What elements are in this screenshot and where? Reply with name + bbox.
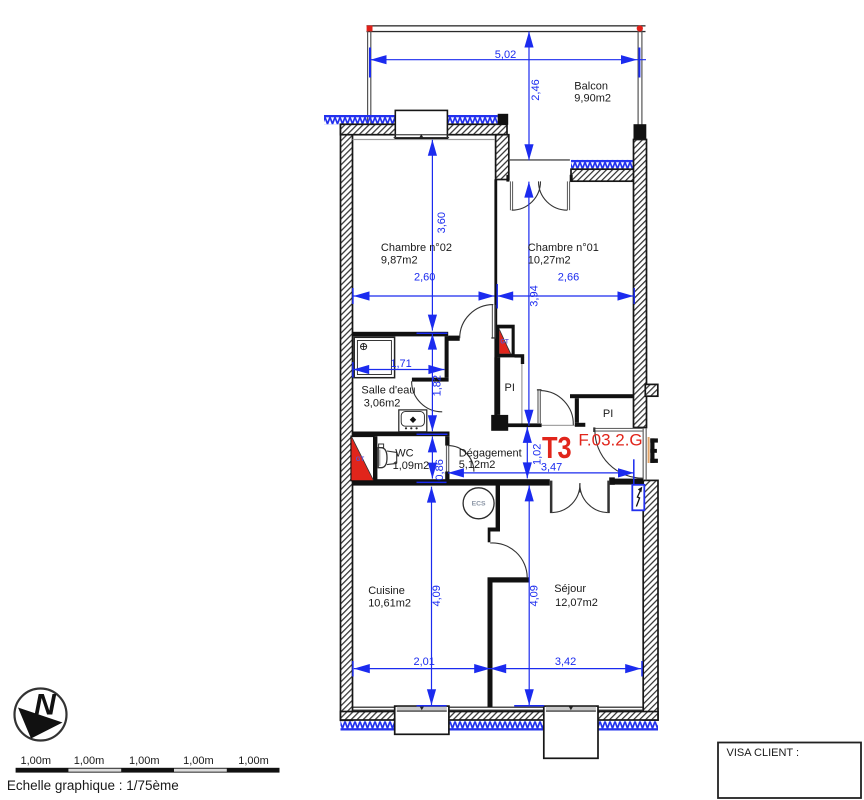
svg-text:1,09m2: 1,09m2 [393,460,430,472]
svg-text:GT: GT [500,340,509,346]
svg-text:3,60: 3,60 [436,212,448,233]
svg-text:3,42: 3,42 [555,656,576,668]
svg-text:Séjour: Séjour [554,583,586,595]
svg-text:1,71: 1,71 [390,358,411,370]
svg-text:Echelle graphique : 1/75ème: Echelle graphique : 1/75ème [7,778,179,793]
svg-text:WC: WC [395,448,413,460]
svg-text:1,00m: 1,00m [238,755,269,767]
svg-text:4,09: 4,09 [431,585,443,606]
svg-text:5,02: 5,02 [495,49,516,61]
svg-text:10,61m2: 10,61m2 [368,597,411,609]
svg-text:GT: GT [356,457,365,463]
svg-text:3,06m2: 3,06m2 [364,398,401,410]
svg-text:1,00m: 1,00m [129,755,160,767]
svg-text:1,00m: 1,00m [21,755,52,767]
svg-text:2,66: 2,66 [558,272,579,284]
svg-text:2,46: 2,46 [530,79,542,100]
svg-text:PI: PI [603,408,613,420]
svg-text:1,82: 1,82 [431,375,443,396]
svg-text:1,00m: 1,00m [74,755,105,767]
svg-text:PI: PI [505,382,515,394]
svg-text:F.03.2.G: F.03.2.G [578,431,642,450]
svg-text:5,12m2: 5,12m2 [459,459,496,471]
svg-text:Chambre n°01: Chambre n°01 [528,242,599,254]
svg-text:4,09: 4,09 [529,585,541,606]
svg-text:2,01: 2,01 [413,656,434,668]
svg-text:Chambre n°02: Chambre n°02 [381,242,452,254]
svg-text:VISA CLIENT :: VISA CLIENT : [727,747,800,759]
svg-text:9,87m2: 9,87m2 [381,254,418,266]
svg-text:12,07m2: 12,07m2 [555,597,598,609]
svg-text:ECS: ECS [472,501,486,508]
svg-text:1,00m: 1,00m [183,755,214,767]
svg-text:9,90m2: 9,90m2 [574,93,611,105]
svg-text:2,60: 2,60 [414,272,435,284]
svg-text:Balcon: Balcon [574,80,608,92]
svg-text:Salle d'eau: Salle d'eau [361,385,415,397]
svg-text:10,27m2: 10,27m2 [528,254,571,266]
svg-text:Dégagement: Dégagement [459,448,522,460]
svg-text:Cuisine: Cuisine [368,585,405,597]
svg-text:0,86: 0,86 [434,459,446,480]
svg-text:T3: T3 [542,431,572,466]
